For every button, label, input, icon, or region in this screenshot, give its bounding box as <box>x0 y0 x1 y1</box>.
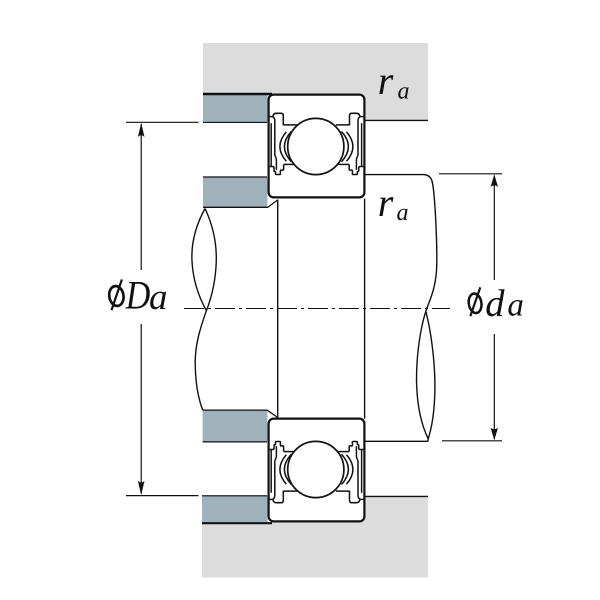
svg-text:d: d <box>485 283 505 325</box>
svg-text:r: r <box>378 58 394 103</box>
svg-text:r: r <box>378 180 394 225</box>
svg-text:a: a <box>398 79 410 105</box>
svg-text:a: a <box>507 288 524 324</box>
svg-text:D: D <box>125 273 150 318</box>
svg-text:a: a <box>149 277 168 318</box>
svg-text:a: a <box>397 200 409 226</box>
